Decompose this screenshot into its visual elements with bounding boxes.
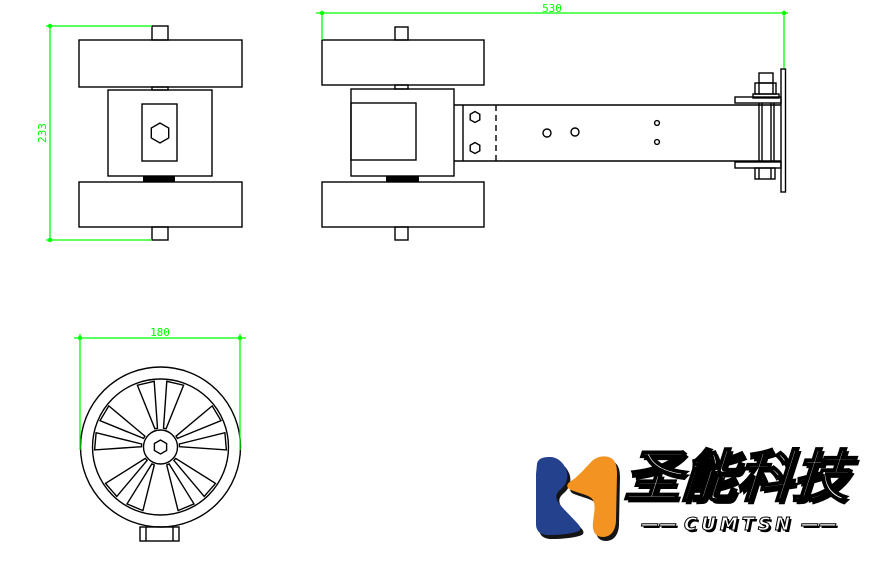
wheel-spoke <box>100 406 145 439</box>
wall-mount-end <box>735 69 786 192</box>
wheel-spoke <box>127 464 154 511</box>
body <box>351 89 454 176</box>
dimension-dot <box>48 238 52 242</box>
dimension-180-label: 180 <box>150 326 170 339</box>
cad-sheet: 233 <box>0 0 888 563</box>
dimension-233: 233 <box>36 24 152 242</box>
wheel-spoke <box>164 381 184 429</box>
dimension-530: 530 <box>316 2 788 68</box>
logo-mark-icon <box>531 454 626 546</box>
dimension-dot <box>238 336 242 340</box>
side-view <box>322 27 786 240</box>
axle-tab-top <box>395 27 408 40</box>
wheel-spoke <box>137 381 157 429</box>
dimension-180: 180 <box>74 326 246 450</box>
clevis-bolt-bottom <box>470 143 480 154</box>
wheel-spokes <box>95 381 227 510</box>
hub <box>144 430 178 464</box>
wheel-spoke <box>174 458 216 496</box>
company-logo: 圣能科技 —— CUMTSN —— <box>531 450 887 550</box>
wheel-view <box>81 367 241 541</box>
axle-hex-hole <box>154 440 166 454</box>
arm-hole-small <box>655 121 660 126</box>
body <box>108 90 212 176</box>
flange-bottom <box>735 162 781 168</box>
company-name-en: CUMTSN <box>684 514 794 535</box>
spacer-bar <box>143 176 175 182</box>
bolt-nut-bottom <box>755 168 775 179</box>
wheel-spoke <box>176 406 221 439</box>
axle-tab-bottom <box>395 227 408 240</box>
company-name-cn: 圣能科技 <box>623 444 888 512</box>
dimension-530-label: 530 <box>542 2 562 15</box>
tire-outer <box>81 367 241 527</box>
front-view <box>79 26 242 240</box>
dimension-dot <box>48 24 52 28</box>
rim <box>93 379 229 515</box>
axle-tab-bottom <box>152 227 168 240</box>
arm-hole-small <box>655 140 660 145</box>
wheel-top <box>79 40 242 87</box>
company-name-en-row: —— CUMTSN —— <box>641 514 837 535</box>
hex-bolt-head <box>151 123 168 143</box>
hub-window <box>351 103 416 160</box>
bolt-head-top <box>759 73 773 83</box>
dimension-dot <box>320 11 324 15</box>
mounting-arm <box>454 105 781 161</box>
wheel-spoke <box>106 458 148 496</box>
clevis-bolt-top <box>470 112 480 123</box>
spacer-bar <box>386 176 419 182</box>
washer-top <box>753 94 779 98</box>
axle-tab-top <box>152 26 168 40</box>
dimension-dot <box>782 11 786 15</box>
wheel-bottom <box>79 182 242 227</box>
hub-window <box>142 104 177 161</box>
mounting-plate <box>781 69 786 192</box>
wheel-top <box>322 40 484 85</box>
wheel-spoke <box>167 464 194 511</box>
arm-hole <box>543 129 551 137</box>
dash-left: —— <box>641 514 677 535</box>
arm-hole <box>571 128 579 136</box>
dash-right: —— <box>801 514 837 535</box>
dimension-233-label: 233 <box>36 123 49 143</box>
dimension-dot <box>78 336 82 340</box>
wheel-bottom <box>322 182 484 227</box>
